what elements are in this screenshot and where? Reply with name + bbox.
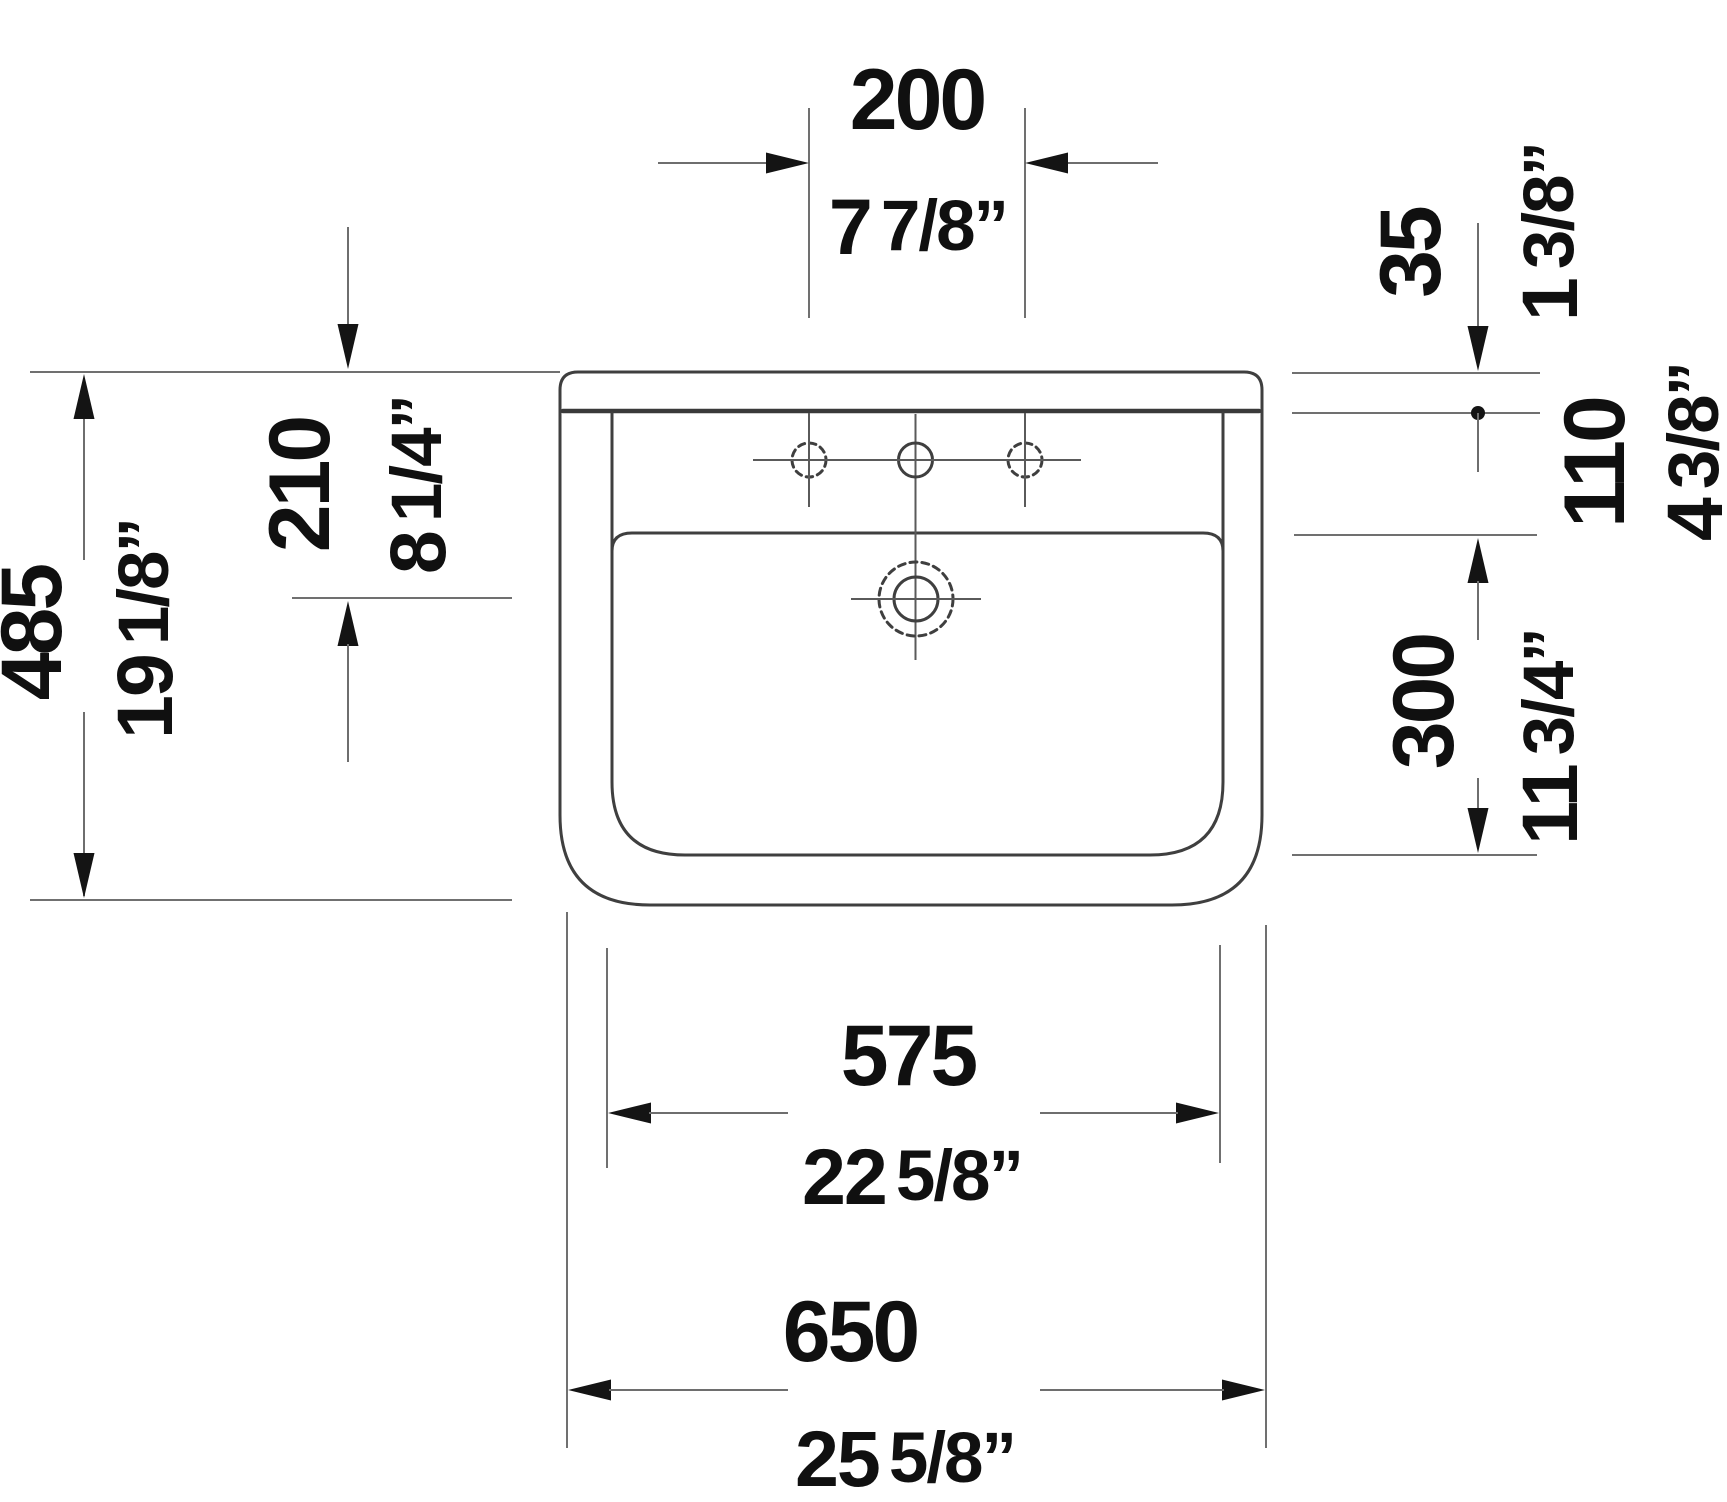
dim-rim-thickness: 35 13/8”	[1363, 143, 1594, 420]
washbasin-dimension-diagram: 200 77/8” 485 191/8” 210 81/4” 35 13	[0, 0, 1727, 1502]
dim-300-inch-label: 113/4”	[1505, 629, 1594, 845]
dim-300-mm-label: 300	[1376, 635, 1472, 770]
dim-top-to-overflow: 210 81/4”	[252, 227, 512, 762]
dim-210-mm-label: 210	[252, 418, 348, 553]
dim-35-mm-label: 35	[1363, 207, 1459, 298]
faucet-hole-left-dashed	[753, 413, 865, 507]
sink-outer-body	[560, 372, 1262, 905]
sink-outline	[560, 372, 1262, 905]
dim-650-mm-label: 650	[783, 1284, 918, 1380]
dim-faucet-hole-spacing: 200 77/8”	[658, 52, 1158, 318]
dim-485-mm-label: 485	[0, 565, 80, 701]
dim-210-inch-label: 81/4”	[373, 396, 462, 574]
dim-rim-to-bowl-edge: 110 43/8”	[1468, 363, 1727, 640]
sink-inner-wall	[612, 413, 1223, 855]
faucet-hole-right-dashed	[969, 413, 1081, 507]
dim-110-inch-label: 43/8”	[1650, 363, 1727, 541]
dim-200-mm-label: 200	[850, 52, 985, 148]
dim-485-inch-label: 191/8”	[100, 519, 189, 739]
bowl-front-edge	[612, 533, 1223, 551]
dim-575-mm-label: 575	[841, 1008, 977, 1104]
dim-200-inch-label: 77/8”	[829, 182, 1007, 271]
dim-575-inch-label: 225/8”	[802, 1132, 1022, 1221]
dim-650-inch-label: 255/8”	[795, 1414, 1015, 1502]
dim-bowl-inner-depth: 300 113/4”	[1376, 629, 1594, 853]
dim-bowl-inner-width: 575 225/8”	[607, 945, 1220, 1221]
dim-right-column: 35 13/8” 110 43/8” 300 113/4”	[1292, 143, 1727, 855]
technical-drawing-page: 200 77/8” 485 191/8” 210 81/4” 35 13	[0, 0, 1727, 1502]
dim-35-inch-label: 13/8”	[1505, 143, 1594, 321]
dim-110-mm-label: 110	[1547, 398, 1643, 528]
